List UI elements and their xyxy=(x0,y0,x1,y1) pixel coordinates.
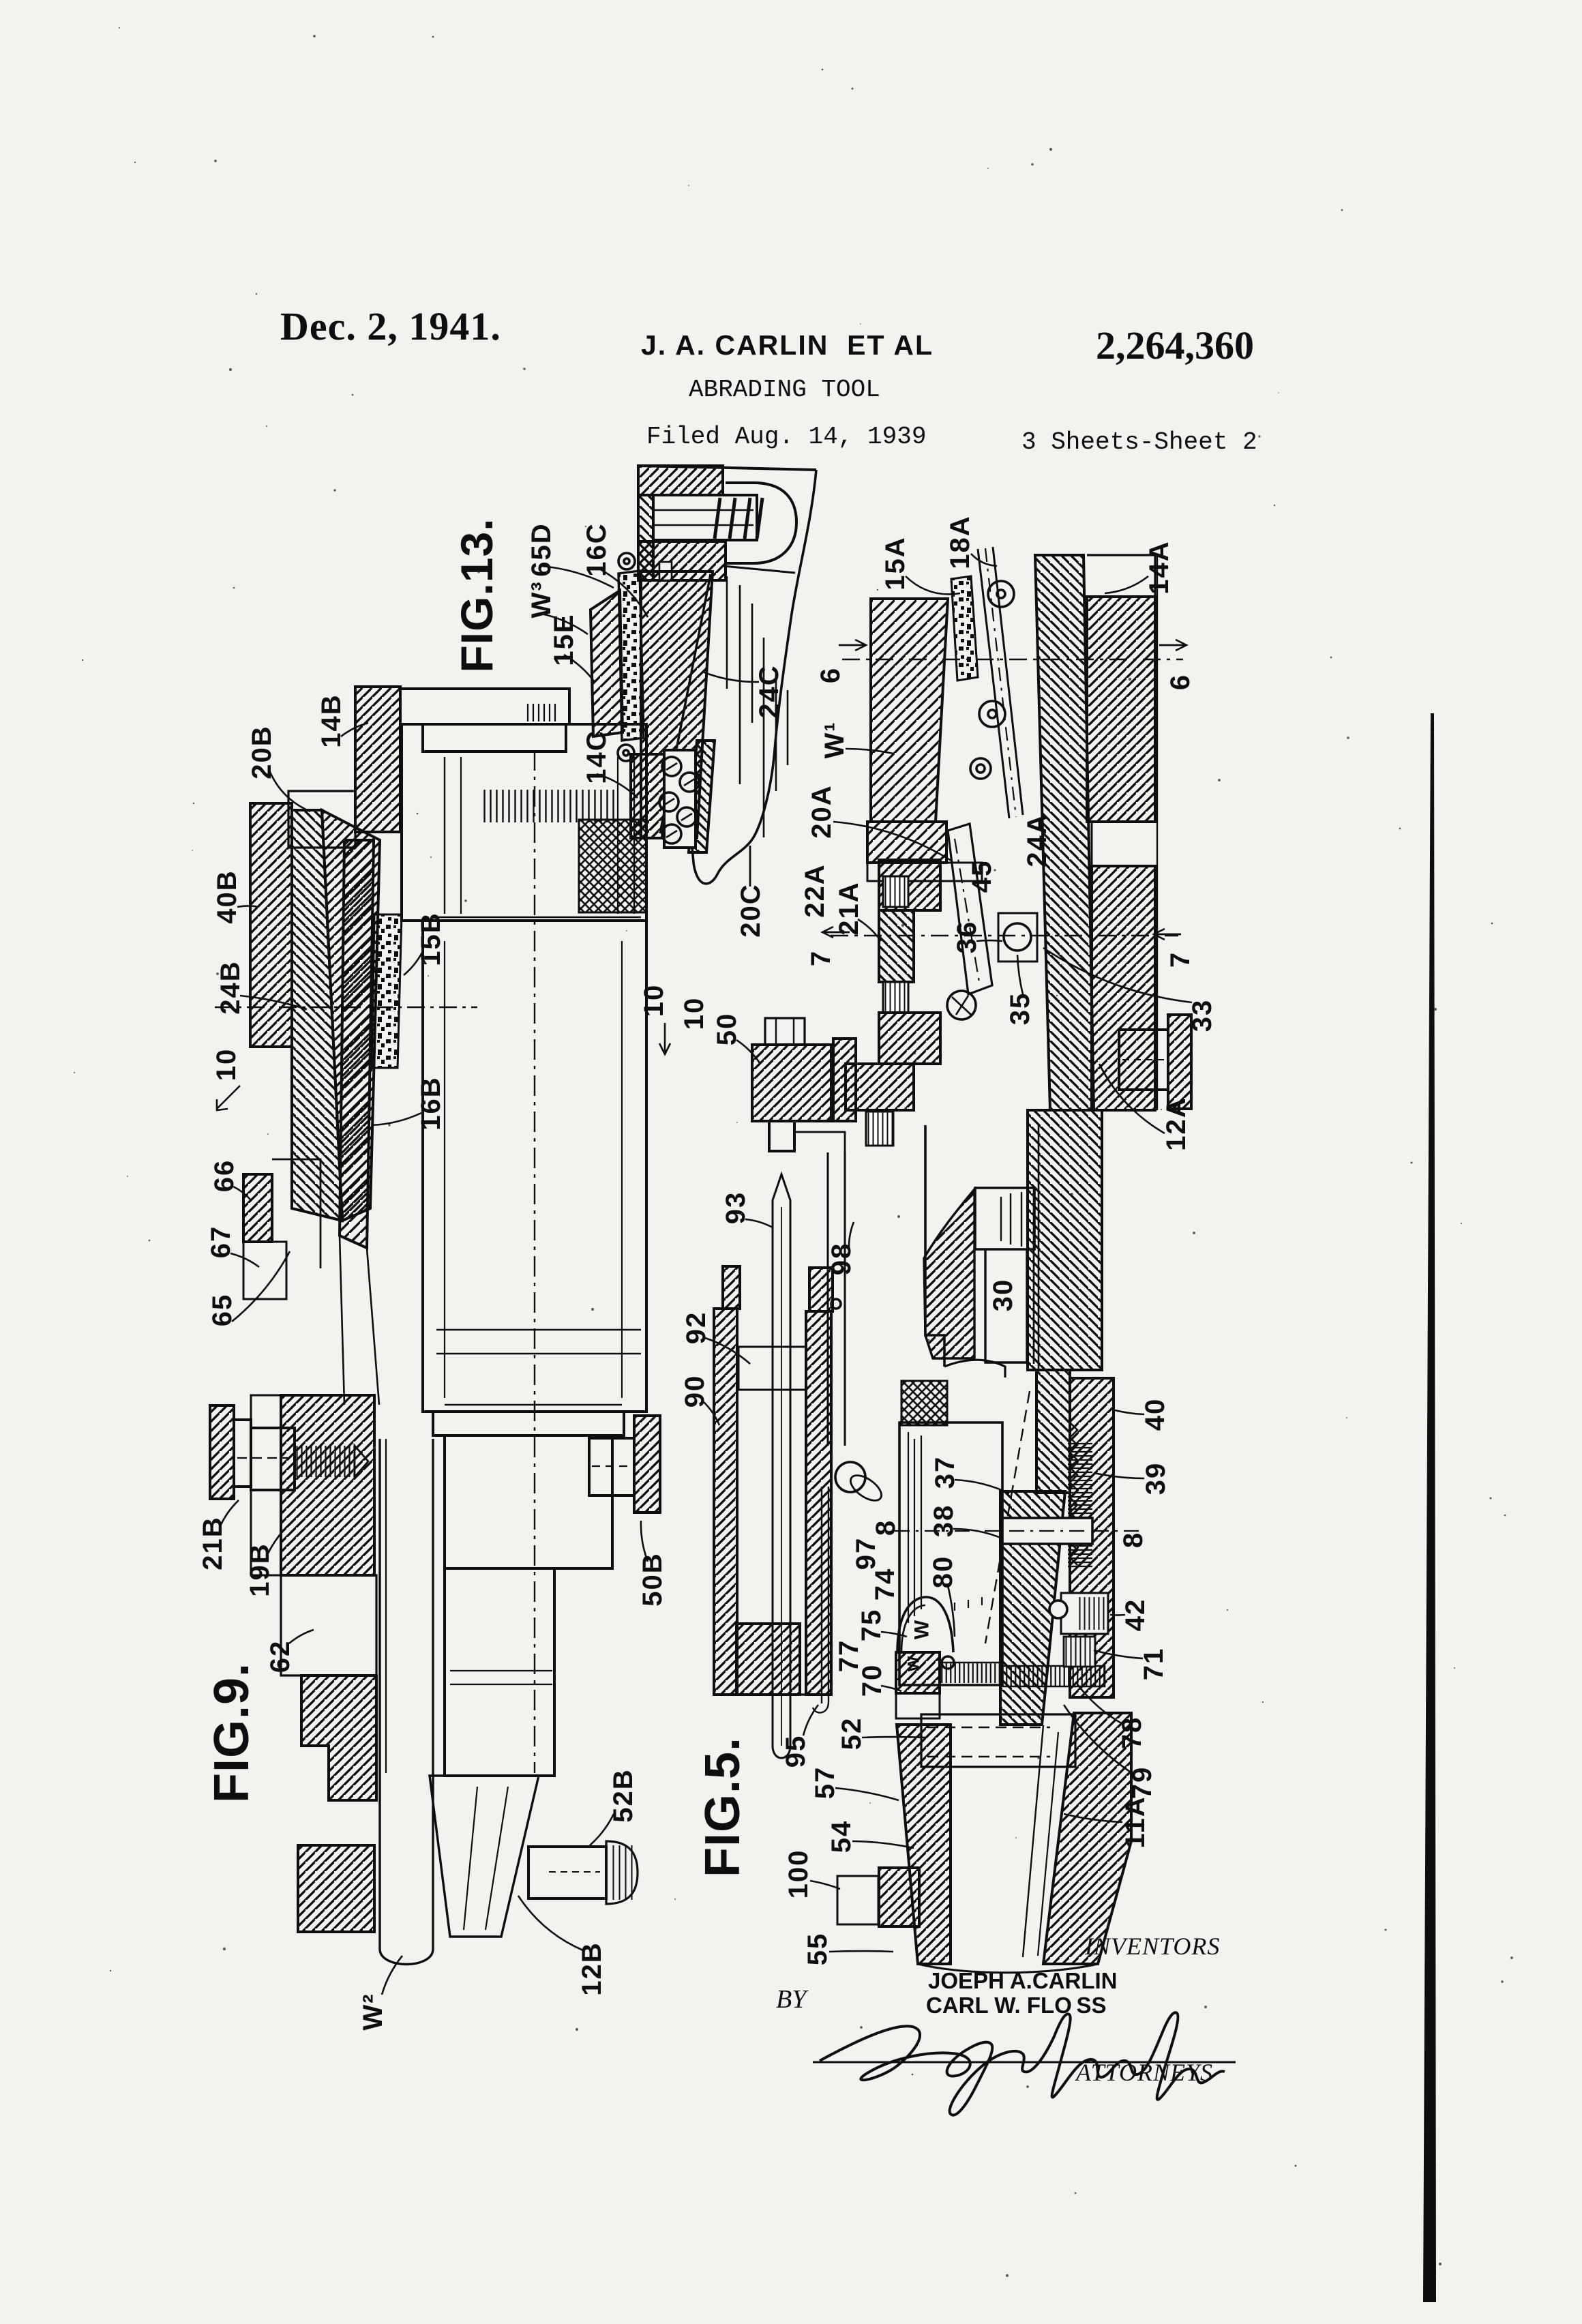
svg-text:21B: 21B xyxy=(198,1516,228,1570)
svg-text:16C: 16C xyxy=(582,522,612,576)
svg-text:8: 8 xyxy=(1118,1532,1148,1548)
svg-text:24B: 24B xyxy=(215,960,245,1014)
svg-text:11A: 11A xyxy=(1120,1796,1150,1848)
svg-text:FIG.13.: FIG.13. xyxy=(451,518,502,672)
svg-text:54: 54 xyxy=(826,1820,856,1853)
svg-text:W: W xyxy=(905,1656,923,1671)
svg-text:W²: W² xyxy=(358,1993,388,2030)
svg-text:50B: 50B xyxy=(638,1552,668,1606)
svg-text:20A: 20A xyxy=(807,784,837,838)
svg-text:6: 6 xyxy=(1165,674,1195,690)
svg-text:40: 40 xyxy=(1140,1398,1170,1431)
svg-text:80: 80 xyxy=(928,1555,958,1589)
svg-text:74: 74 xyxy=(870,1568,900,1601)
svg-text:62: 62 xyxy=(265,1640,295,1673)
svg-text:W: W xyxy=(911,1620,934,1639)
svg-text:20B: 20B xyxy=(247,725,277,779)
svg-text:97: 97 xyxy=(851,1537,881,1570)
svg-text:15A: 15A xyxy=(880,536,910,590)
svg-text:45: 45 xyxy=(967,860,997,893)
svg-text:24A: 24A xyxy=(1022,813,1052,867)
svg-text:18A: 18A xyxy=(945,515,975,569)
svg-text:10: 10 xyxy=(679,997,709,1030)
svg-text:95: 95 xyxy=(781,1735,811,1768)
svg-text:39: 39 xyxy=(1141,1462,1171,1495)
svg-text:33: 33 xyxy=(1187,999,1217,1032)
svg-text:98: 98 xyxy=(826,1242,856,1276)
svg-text:55: 55 xyxy=(803,1933,833,1966)
svg-text:8: 8 xyxy=(871,1519,901,1536)
svg-text:100: 100 xyxy=(783,1849,814,1899)
svg-text:22A: 22A xyxy=(800,863,830,917)
svg-text:75: 75 xyxy=(856,1609,886,1642)
svg-text:10: 10 xyxy=(211,1048,241,1082)
svg-text:78: 78 xyxy=(1117,1716,1147,1750)
svg-text:14B: 14B xyxy=(316,694,346,747)
svg-text:6: 6 xyxy=(816,667,846,683)
svg-text:16B: 16B xyxy=(416,1076,446,1130)
svg-text:37: 37 xyxy=(930,1456,960,1489)
svg-text:24C: 24C xyxy=(754,664,784,718)
svg-text:70: 70 xyxy=(857,1664,887,1697)
svg-text:20C: 20C xyxy=(736,883,766,937)
svg-text:10: 10 xyxy=(639,984,669,1017)
svg-text:65D: 65D xyxy=(526,522,556,576)
svg-text:38: 38 xyxy=(929,1504,959,1538)
svg-text:W¹: W¹ xyxy=(820,721,850,758)
svg-text:14C: 14C xyxy=(582,730,612,784)
svg-text:15B: 15B xyxy=(416,912,446,966)
svg-text:7: 7 xyxy=(1165,951,1195,968)
svg-text:35: 35 xyxy=(1005,992,1035,1026)
svg-text:79: 79 xyxy=(1127,1766,1157,1800)
svg-text:21A: 21A xyxy=(834,881,864,935)
svg-text:W³: W³ xyxy=(526,580,556,618)
svg-text:52: 52 xyxy=(837,1717,867,1751)
svg-text:FIG.9.: FIG.9. xyxy=(205,1663,259,1803)
svg-text:57: 57 xyxy=(810,1766,840,1800)
svg-text:71: 71 xyxy=(1139,1648,1169,1681)
svg-text:14A: 14A xyxy=(1144,540,1174,594)
svg-text:FIG.5.: FIG.5. xyxy=(696,1737,750,1877)
svg-text:40B: 40B xyxy=(212,869,242,923)
svg-text:7: 7 xyxy=(806,950,836,966)
svg-text:12A: 12A xyxy=(1161,1097,1191,1150)
svg-text:36: 36 xyxy=(952,921,982,954)
svg-text:30: 30 xyxy=(988,1279,1018,1312)
